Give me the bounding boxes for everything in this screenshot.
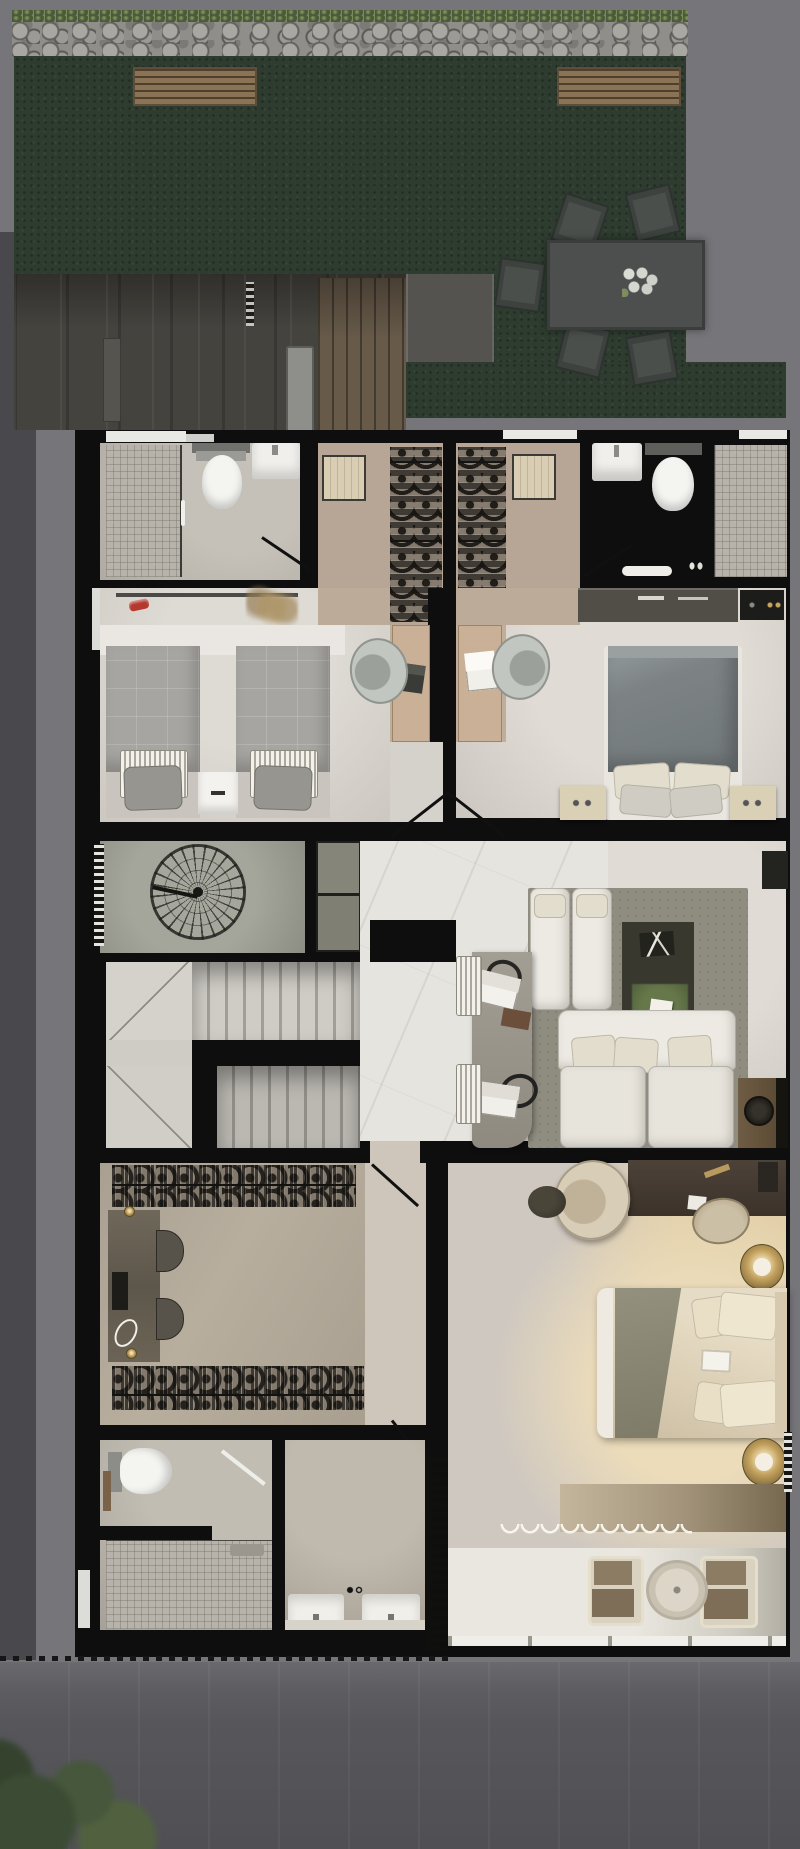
chaise-module (572, 888, 612, 1010)
closet-tan-patch-2 (456, 588, 580, 625)
sink-2 (592, 443, 642, 481)
bed-pillow (123, 765, 183, 811)
single-bed-a (106, 646, 200, 818)
window-sill-step (186, 434, 214, 442)
stair-mid-landing (106, 1040, 192, 1066)
rendered-floor-plan (0, 0, 800, 1849)
radiator-ticks (94, 844, 104, 946)
floor-under-desk (390, 742, 443, 822)
bed-pillow (619, 784, 673, 818)
desk-lamp (758, 1162, 778, 1192)
curtain-rail-ticks (784, 1432, 792, 1492)
fireplace-box (762, 851, 788, 889)
rail-rod (112, 1394, 364, 1396)
master-rail-bottom (112, 1366, 364, 1410)
tablet (501, 1008, 532, 1031)
rail-rod (459, 540, 506, 542)
laptop (476, 1081, 520, 1118)
deck-slab-right (406, 274, 494, 362)
master-rail-top (112, 1165, 356, 1207)
stone-boundary-wall (12, 22, 688, 58)
cabinet-shelf (776, 1078, 788, 1148)
master-entry-gap (370, 1141, 420, 1165)
counter-tray (112, 1272, 128, 1310)
bath-stub-wall (80, 1526, 212, 1540)
nightstand-left (560, 786, 606, 820)
stair-guard-wall (370, 920, 456, 962)
rail-rod (391, 540, 442, 542)
rail-rod (112, 1184, 356, 1186)
window-top-left (106, 431, 186, 442)
window-top-mid (503, 430, 577, 439)
balcony-chair (588, 1556, 644, 1626)
vanity-counter-edge (285, 1620, 425, 1630)
round-speaker (744, 1096, 774, 1126)
duvet-slate (608, 646, 738, 772)
rail-rod (459, 461, 506, 463)
left-dark-strip (0, 232, 36, 1660)
window-left-lower (78, 1570, 90, 1628)
property-dashed-line (0, 1656, 455, 1661)
plate-set (622, 267, 660, 297)
sketch-artwork (639, 931, 675, 957)
deck-vent-ticks (246, 282, 254, 326)
balcony-chair (700, 1556, 758, 1628)
dried-plant (246, 584, 298, 630)
deck-wood-section (318, 278, 406, 430)
toilet-master-bowl (120, 1448, 172, 1494)
toilet-2-bowl (652, 457, 694, 511)
balcony-round-table (646, 1560, 708, 1620)
toilet-1-bowl (202, 455, 242, 509)
desk-gold-item (704, 1164, 730, 1179)
sectional-seat (560, 1066, 646, 1148)
stair-wall-sliver (192, 1066, 217, 1148)
striped-bench (456, 1064, 482, 1124)
spiral-staircase (150, 844, 246, 940)
headboard-edge (775, 1292, 787, 1434)
stair-flight-upper (192, 962, 360, 1040)
counter-lamp (124, 1206, 135, 1217)
sectional-seat (648, 1066, 734, 1148)
floor-lamp (742, 1438, 786, 1486)
ottoman-closet-1 (322, 455, 366, 501)
sheer-curtain (500, 1524, 692, 1546)
slippers (688, 560, 704, 572)
tree-canopy-left (0, 1730, 176, 1849)
breakfast-tray (700, 1349, 731, 1373)
hand-mirror (110, 1315, 142, 1351)
shower-1-handle (181, 500, 185, 526)
shower-2 (714, 445, 787, 577)
closet-tan-patch (318, 588, 390, 625)
side-cabinet (738, 1078, 788, 1148)
bed-pillow (717, 1291, 779, 1341)
shower-fixture (230, 1544, 264, 1556)
counter-dots (346, 1586, 364, 1594)
nightstand-right (730, 786, 776, 820)
shared-nightstand (198, 772, 238, 814)
closet-panel-lower (316, 894, 361, 952)
master-bed (597, 1288, 787, 1438)
garden-bench-left (133, 67, 257, 106)
shower-1 (106, 445, 182, 577)
bath-mat (622, 566, 672, 576)
bed-pillow (253, 765, 313, 811)
towel-rail (103, 1471, 111, 1511)
bed-pillow (669, 783, 724, 818)
wall-shelf-electronics (740, 590, 784, 620)
window-top-right (739, 430, 787, 439)
rail-rod (391, 461, 442, 463)
single-bed-b (236, 646, 330, 818)
spiral-handrail-spoke (152, 885, 198, 898)
outdoor-chair (494, 257, 547, 313)
stair-void (192, 1040, 360, 1066)
duvet-fold (608, 646, 738, 658)
counter-lamp (126, 1348, 137, 1359)
double-bed-slate (604, 646, 742, 820)
center-wall-thick (428, 588, 456, 742)
outdoor-chair (625, 329, 679, 386)
bedroom2-dresser (578, 588, 738, 622)
chaise-module (530, 888, 570, 1010)
balcony-slab-edge (448, 1636, 786, 1646)
outdoor-dining-table (547, 240, 705, 330)
striped-bench (456, 956, 482, 1016)
louver-screen (426, 1455, 448, 1652)
ottoman-closet-2 (512, 454, 556, 500)
bed-pillow (719, 1380, 781, 1429)
tree-canopy-right (598, 1668, 800, 1849)
toilet-2-cistern (645, 443, 705, 455)
garden-bench-right (557, 67, 681, 106)
stair-flight-lower (217, 1066, 360, 1148)
deck-planter (103, 338, 121, 422)
stair-landing-upper (106, 962, 192, 1040)
closet-panel-upper (316, 841, 361, 895)
stair-landing-lower (106, 1066, 192, 1148)
round-side-table (528, 1186, 566, 1218)
floor-lamp (740, 1244, 784, 1290)
vanity-counter (108, 1210, 160, 1362)
sink-1 (252, 443, 300, 479)
